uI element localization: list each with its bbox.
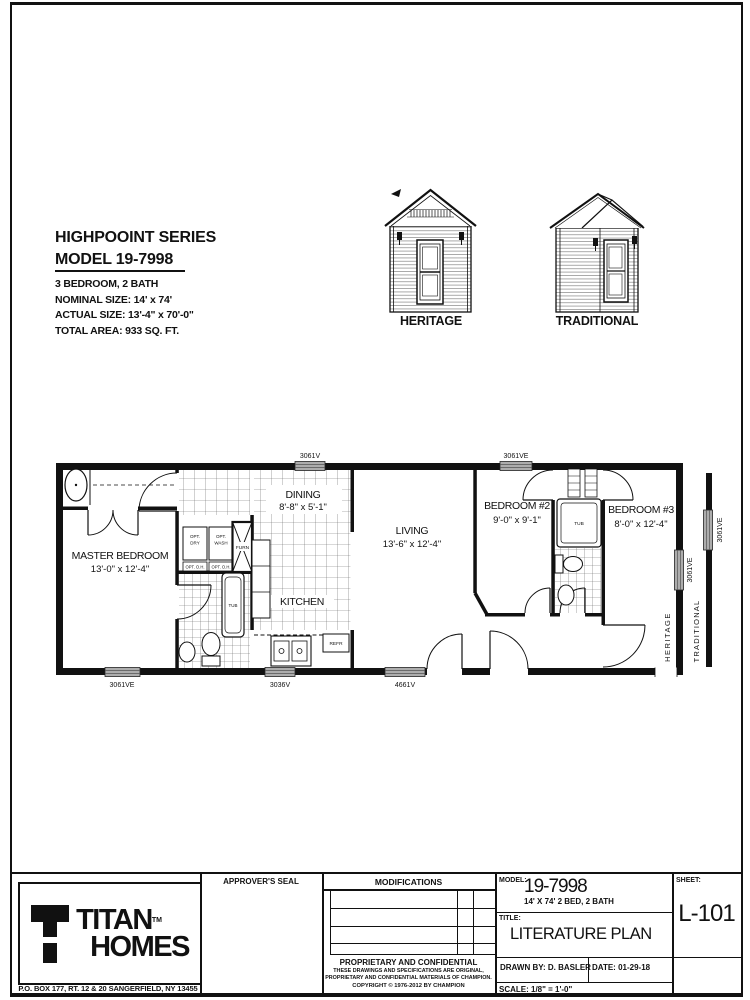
mod-col-line [330, 889, 331, 955]
master-toilet-icon [202, 633, 220, 656]
mod-col-line [457, 889, 458, 955]
opt-oh-label-a: OPT. O.H. [185, 565, 204, 570]
cell-line [672, 957, 741, 958]
bath2-toilet-icon [564, 557, 583, 572]
heritage-elevation [383, 186, 478, 319]
heritage-label: HERITAGE [371, 314, 491, 328]
mod-row-line [330, 926, 495, 927]
roof-vent-icon [391, 189, 401, 197]
room-label-dining: DINING [286, 489, 321, 501]
mod-row-line [330, 908, 495, 909]
titan-homes-logo: TITANTM HOMES [18, 882, 202, 985]
drawing-sheet: HIGHPOOINT SERIES MODEL 19-7998 3 BEDROO… [0, 0, 750, 1000]
traditional-elevation-drawing [548, 190, 646, 314]
spec-actual: ACTUAL SIZE: 13'-4" x 70'-0" [55, 308, 216, 324]
date: DATE: 01-29-18 [592, 963, 650, 972]
model-value: 19-7998 [524, 876, 587, 898]
model-label: MODEL: [499, 877, 527, 884]
heritage-elevation-drawing [383, 186, 478, 314]
heritage-wall-label: HERITAGE [663, 612, 672, 662]
logo-titan: TITANTM [76, 907, 189, 934]
series-title: HIGHPOOINT SERIES [55, 228, 216, 248]
copyright-line: COPYRIGHT © 1976-2012 BY CHAMPION [322, 983, 495, 989]
proprietary-heading: PROPRIETARY AND CONFIDENTIAL [322, 958, 495, 967]
opt-oh-label-b: OPT. O.H. [211, 565, 230, 570]
cell-line [495, 912, 672, 913]
cell-line [495, 957, 672, 958]
mod-col-line [473, 889, 474, 955]
proprietary-line1: THESE DRAWINGS AND SPECIFICATIONS ARE OR… [322, 968, 495, 974]
porch-lamp-icon [397, 232, 402, 240]
opt-dry-label-2: DRY [190, 541, 199, 546]
kitchen-sink [271, 636, 311, 666]
room-dims-living: 13'-6" x 12'-4" [383, 539, 441, 550]
room-label-bedroom3: BEDROOM #3 [608, 504, 674, 516]
window-label-4661v: 4661V [395, 682, 416, 689]
room-label-bedroom2: BEDROOM #2 [484, 500, 550, 512]
company-address: P.O. BOX 177, RT. 12 & 20 SANGERFIELD, N… [17, 984, 199, 993]
trademark: TM [152, 917, 162, 924]
spec-bedbath: 3 BEDROOM, 2 BATH [55, 277, 216, 293]
tub-master-label: TUB [229, 603, 238, 608]
title-label: TITLE: [499, 915, 521, 922]
furn-label: FURN [236, 545, 250, 551]
divider [672, 874, 674, 995]
tub-bath2-label: TUB [574, 521, 584, 527]
porch-lamp-icon [632, 236, 637, 244]
room-dims-bedroom3: 8'-0" x 12'-4" [614, 519, 667, 530]
bath2-sink-icon [558, 585, 574, 605]
cell-line [495, 982, 672, 983]
window-label-right-main: 3061VE [687, 557, 694, 582]
drawn-by: DRAWN BY: D. BASLER [500, 963, 591, 972]
kitchen-cabinets [252, 540, 270, 618]
room-label-master: MASTER BEDROOM [72, 550, 169, 562]
model-title: MODEL 19-7998 [55, 250, 185, 272]
spec-nominal: NOMINAL SIZE: 14' x 74' [55, 293, 216, 309]
window-label-3061v: 3061V [300, 453, 321, 460]
divider [495, 874, 497, 995]
window-label-3036v: 3036V [270, 682, 291, 689]
room-dims-bedroom2: 9'-0" x 9'-1" [493, 515, 541, 526]
porch-lamp-icon [459, 232, 464, 240]
scale: SCALE: 1/8" = 1'-0" [499, 985, 572, 994]
refr-label: REFR [329, 641, 343, 647]
proprietary-line2: PROPRIETARY AND CONFIDENTIAL MATERIALS O… [322, 975, 495, 981]
modifications-header: MODIFICATIONS [322, 877, 495, 887]
titan-logo-mark-icon [31, 905, 69, 963]
traditional-elevation [548, 190, 646, 319]
window-label-3061ve-bottom: 3061VE [110, 682, 135, 689]
sheet-value: L-101 [672, 900, 741, 928]
window-label-right-alt: 3061VE [717, 517, 724, 542]
logo-homes: HOMES [90, 934, 189, 961]
floor-plan: MASTER BEDROOM 13'-0" x 12'-4" DINING 8'… [40, 445, 740, 700]
porch-lamp-icon [593, 238, 598, 246]
approvers-seal-header: APPROVER'S SEAL [200, 877, 322, 886]
room-dims-dining: 8'-8" x 5'-1" [279, 502, 327, 513]
spec-area: TOTAL AREA: 933 SQ. FT. [55, 324, 216, 340]
mod-row-line [330, 943, 495, 944]
room-label-living: LIVING [396, 525, 429, 537]
sheet-label: SHEET: [676, 877, 701, 884]
master-sink-icon [179, 642, 195, 662]
info-block: HIGHPOOINT SERIES MODEL 19-7998 3 BEDROO… [55, 228, 216, 339]
opt-wash-label-1: OPT. [216, 534, 226, 539]
mod-row-line [330, 954, 495, 955]
model-sub: 14' X 74' 2 BED, 2 BATH [524, 897, 614, 906]
title-value: LITERATURE PLAN [510, 925, 652, 944]
opt-wash-label-2: WASH [214, 541, 227, 546]
chamfer-wall [475, 593, 487, 615]
traditional-label: TRADITIONAL [537, 314, 657, 328]
room-label-kitchen: KITCHEN [280, 596, 324, 608]
window-label-3061ve-top: 3061VE [504, 453, 529, 460]
opt-dry-label-1: OPT. [190, 534, 200, 539]
traditional-end-wall [704, 473, 713, 667]
traditional-wall-label: TRADITIONAL [692, 600, 701, 663]
title-block: TITANTM HOMES P.O. BOX 177, RT. 12 & 20 … [10, 872, 741, 995]
modifications-underline [322, 889, 495, 891]
room-dims-master: 13'-0" x 12'-4" [91, 564, 149, 575]
